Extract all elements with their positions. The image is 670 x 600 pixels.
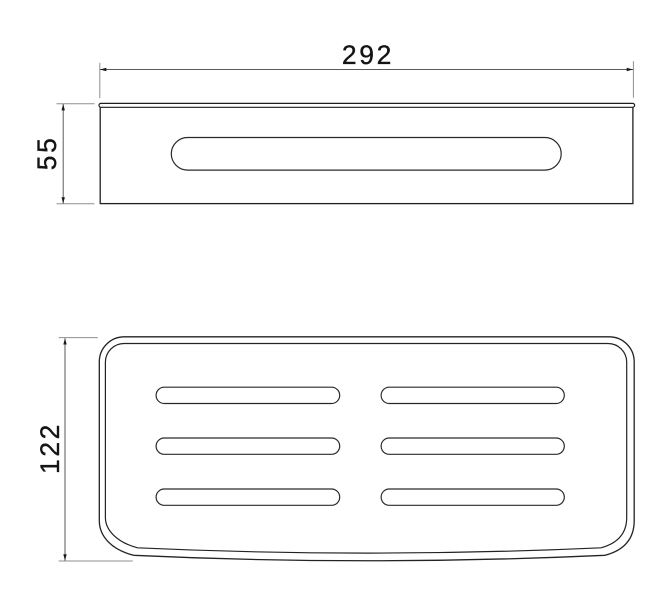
svg-text:55: 55 <box>32 136 62 171</box>
svg-text:292: 292 <box>342 40 394 70</box>
svg-text:122: 122 <box>35 422 65 474</box>
